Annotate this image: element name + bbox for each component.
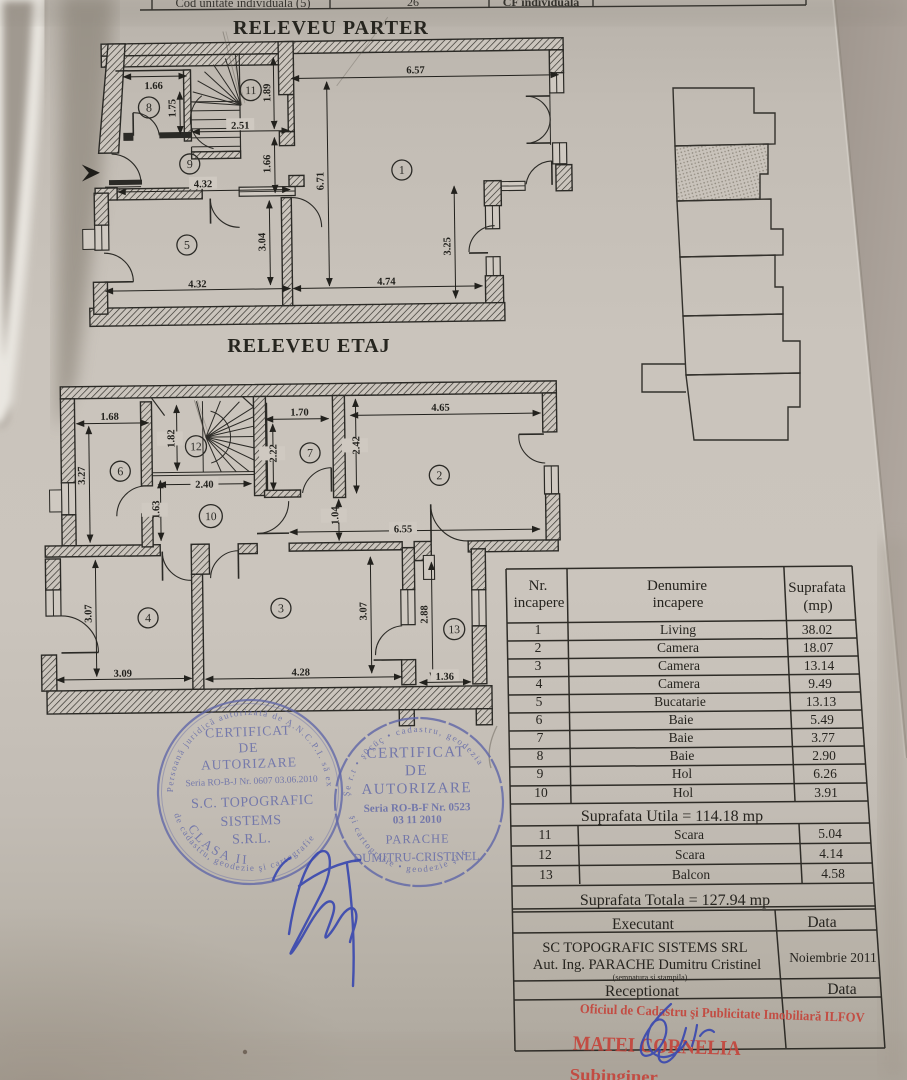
svg-text:Denumire: Denumire [647,578,707,594]
svg-text:9: 9 [537,766,544,781]
svg-text:Nr.: Nr. [529,578,548,594]
svg-text:PARACHE: PARACHE [385,831,449,846]
svg-text:Bucatarie: Bucatarie [654,694,706,709]
svg-text:1.70: 1.70 [290,407,309,418]
svg-text:13.14: 13.14 [804,658,835,673]
svg-text:5: 5 [184,238,190,252]
svg-text:3.77: 3.77 [811,730,835,745]
svg-text:1.63: 1.63 [151,500,162,519]
svg-text:Receptionat: Receptionat [605,983,680,1000]
svg-text:4.14: 4.14 [819,846,843,861]
svg-text:SC TOPOGRAFIC SISTEMS SRL: SC TOPOGRAFIC SISTEMS SRL [542,940,747,956]
svg-text:Seria RO-B-F Nr. 0523: Seria RO-B-F Nr. 0523 [364,801,471,815]
svg-text:Scara: Scara [675,847,705,862]
svg-text:2.51: 2.51 [231,121,250,132]
svg-text:8: 8 [537,748,544,763]
svg-text:2.88: 2.88 [419,605,430,624]
svg-text:Balcon: Balcon [672,867,710,882]
svg-text:Camera: Camera [658,676,700,691]
svg-text:CERTIFICAT: CERTIFICAT [366,744,465,762]
svg-text:Suprafata: Suprafata [788,580,846,596]
svg-text:5.49: 5.49 [810,712,834,727]
svg-text:1.82: 1.82 [166,429,177,448]
svg-text:2.40: 2.40 [195,480,214,491]
svg-text:Baie: Baie [669,712,694,727]
svg-text:Baie: Baie [669,730,694,745]
svg-text:DE: DE [238,740,259,756]
svg-text:10: 10 [534,785,548,800]
svg-text:8: 8 [146,100,152,114]
svg-text:18.07: 18.07 [803,640,834,655]
svg-text:2: 2 [535,640,542,655]
svg-text:CF individuală: CF individuală [503,0,580,9]
svg-text:1.66: 1.66 [144,81,163,92]
svg-text:incapere: incapere [653,595,704,611]
svg-text:7: 7 [307,446,313,460]
svg-text:(semnatura si stampila): (semnatura si stampila) [613,973,688,982]
svg-text:38.02: 38.02 [802,622,832,637]
svg-text:1.36: 1.36 [436,672,455,683]
svg-text:Hol: Hol [672,766,692,781]
svg-text:4: 4 [145,611,151,625]
svg-text:SISTEMS: SISTEMS [220,813,282,830]
svg-text:6.55: 6.55 [394,524,413,535]
svg-text:1.68: 1.68 [100,412,119,423]
svg-text:5.04: 5.04 [818,826,842,841]
svg-text:9.49: 9.49 [808,676,832,691]
svg-text:26: 26 [407,0,419,9]
svg-text:2.42: 2.42 [351,436,362,455]
svg-text:4.74: 4.74 [377,277,396,288]
svg-text:1.66: 1.66 [262,155,273,174]
svg-text:3.25: 3.25 [442,237,453,256]
svg-text:Camera: Camera [658,658,700,673]
svg-text:RELEVEU PARTER: RELEVEU PARTER [233,17,429,39]
svg-text:3.07: 3.07 [83,604,94,623]
svg-text:Camera: Camera [657,640,699,655]
svg-text:6: 6 [536,712,543,727]
svg-text:3.09: 3.09 [113,669,132,680]
svg-text:3.91: 3.91 [814,785,838,800]
svg-text:1: 1 [535,622,542,637]
svg-text:Executant: Executant [612,916,675,933]
svg-text:Data: Data [807,914,836,931]
svg-text:11: 11 [539,827,552,842]
svg-text:2.90: 2.90 [812,748,836,763]
svg-text:13.13: 13.13 [806,694,837,709]
svg-text:DE: DE [405,763,428,779]
svg-text:13: 13 [539,867,553,882]
svg-text:1: 1 [399,163,405,177]
svg-text:4.32: 4.32 [188,279,207,290]
svg-text:1.04: 1.04 [330,506,341,525]
svg-text:11: 11 [245,85,256,97]
svg-text:3: 3 [278,601,284,615]
svg-text:6.26: 6.26 [813,766,837,781]
svg-text:6: 6 [117,464,123,478]
svg-text:Subinginer: Subinginer [570,1065,659,1080]
svg-text:10: 10 [205,511,217,523]
svg-text:Living: Living [660,622,696,637]
svg-text:S.R.L.: S.R.L. [232,831,272,847]
svg-text:1.75: 1.75 [167,99,178,118]
svg-text:7: 7 [537,730,544,745]
svg-text:5: 5 [536,694,543,709]
svg-text:6.71: 6.71 [315,172,326,191]
svg-text:RELEVEU ETAJ: RELEVEU ETAJ [227,335,390,357]
svg-text:4: 4 [536,676,543,691]
svg-text:Aut. Ing. PARACHE Dumitru Cris: Aut. Ing. PARACHE Dumitru Cristinel [533,957,761,973]
svg-text:CERTIFICAT: CERTIFICAT [205,723,291,741]
svg-text:Scara: Scara [674,827,704,842]
svg-text:12: 12 [538,847,552,862]
svg-text:4.32: 4.32 [194,179,213,190]
svg-text:2: 2 [436,468,442,482]
svg-text:Cod unitate individuală (5): Cod unitate individuală (5) [175,0,310,10]
svg-text:13: 13 [448,624,460,636]
svg-text:AUTORIZARE: AUTORIZARE [361,780,472,798]
svg-text:4.58: 4.58 [821,866,845,881]
svg-text:Suprafata Totala = 127.94 mp: Suprafata Totala = 127.94 mp [580,892,770,909]
svg-text:3: 3 [535,658,542,673]
svg-text:4.65: 4.65 [431,403,450,414]
svg-text:03 11 2010: 03 11 2010 [393,814,443,827]
svg-text:3.04: 3.04 [257,232,268,251]
svg-text:1.89: 1.89 [262,84,273,103]
svg-text:2.22: 2.22 [268,444,279,463]
svg-text:12: 12 [190,441,202,453]
svg-text:3.27: 3.27 [77,466,88,485]
svg-text:6.57: 6.57 [406,65,425,76]
svg-text:4.28: 4.28 [291,667,310,678]
svg-text:Data: Data [827,981,856,998]
svg-text:incapere: incapere [514,595,565,611]
svg-text:Hol: Hol [673,785,693,800]
svg-text:DUMITRU-CRISTINEL.: DUMITRU-CRISTINEL. [353,849,483,865]
svg-text:9: 9 [187,157,193,171]
svg-text:(mp): (mp) [803,598,832,614]
svg-text:Suprafata Utila = 114.18 mp: Suprafata Utila = 114.18 mp [581,808,763,825]
svg-text:Noiembrie 2011: Noiembrie 2011 [789,950,877,965]
svg-text:Baie: Baie [670,748,695,763]
svg-text:3.07: 3.07 [358,602,369,621]
